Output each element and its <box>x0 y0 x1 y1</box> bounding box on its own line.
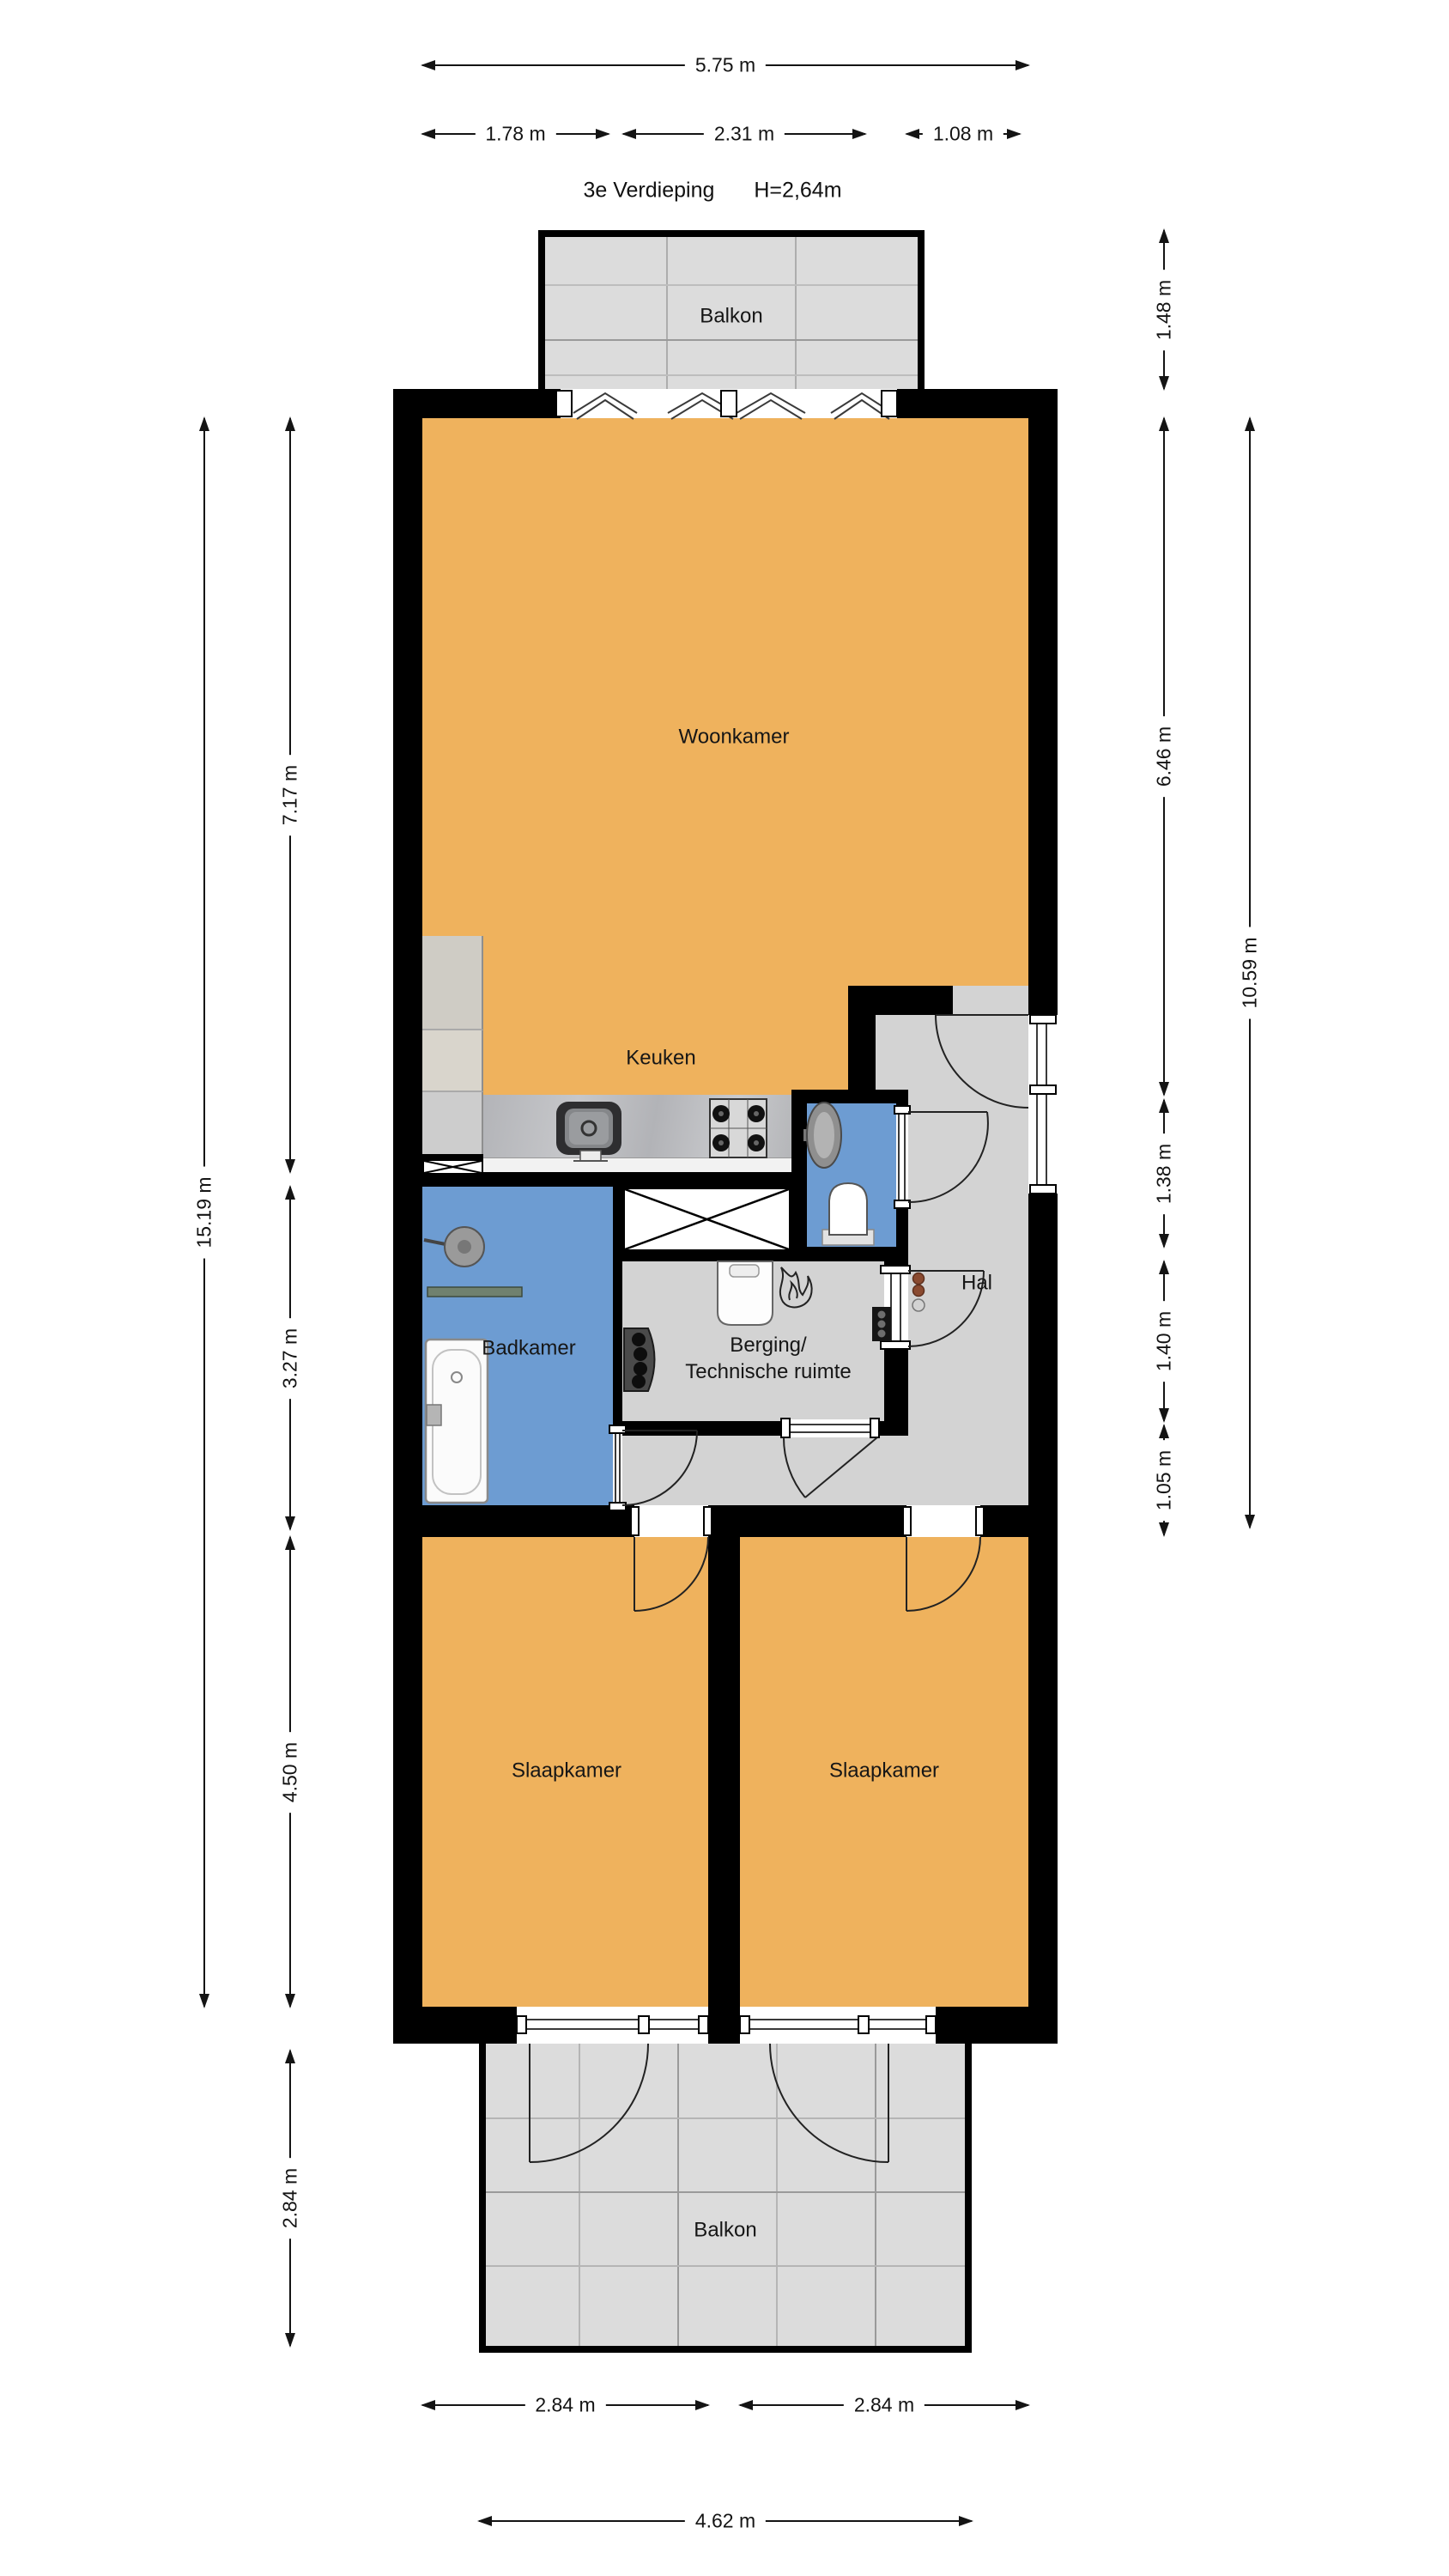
bedroom-window-icons <box>517 2016 936 2033</box>
slaapkamer-right-label: Slaapkamer <box>829 1758 939 1784</box>
dim-top-seg2: 2.31 m <box>623 133 865 135</box>
french-window-icon <box>556 391 897 419</box>
dim-bottom-slaapkamer-right: 2.84 m <box>740 2404 1028 2406</box>
heater-unit-icon <box>624 1328 655 1391</box>
dim-top-seg3: 1.08 m <box>906 133 1020 135</box>
berging-bottom-door-icon <box>781 1419 879 1498</box>
coat-hooks-icon <box>912 1273 925 1312</box>
entry-door-icon <box>936 1015 1056 1194</box>
boiler-flame-icon <box>780 1267 812 1307</box>
bathtub-icon <box>426 1340 488 1503</box>
bedroom-door-right-icon <box>903 1507 984 1611</box>
badkamer-door-icon <box>609 1425 697 1510</box>
dim-right-berging: 1.05 m <box>1163 1425 1165 1535</box>
floor-plan: Balkon Woonkamer Keuken Badkamer Berging… <box>0 0 1449 2576</box>
dim-right-balkon: 1.48 m <box>1163 230 1165 389</box>
balcony-door-left-icon <box>530 2044 648 2162</box>
balkon-bottom-grid <box>486 2044 965 2346</box>
meter-cabinet-icon <box>872 1307 891 1341</box>
shower-icon <box>424 1227 484 1267</box>
dim-left-badkamer: 3.27 m <box>289 1187 291 1529</box>
dim-left-slaapkamer: 4.50 m <box>289 1537 291 2007</box>
berging-label: Berging/ Technische ruimte <box>685 1332 851 1385</box>
dim-top-total: 5.75 m <box>422 64 1028 66</box>
ceiling-height: H=2,64m <box>754 179 841 204</box>
berging-label-line2: Technische ruimte <box>685 1360 851 1383</box>
slaapkamer-left-label: Slaapkamer <box>512 1758 621 1784</box>
badkamer-label: Badkamer <box>482 1335 575 1362</box>
woonkamer-label: Woonkamer <box>679 724 790 750</box>
keuken-label: Keuken <box>626 1045 695 1072</box>
dim-left-total: 15.19 m <box>203 418 205 2007</box>
dim-right-total: 10.59 m <box>1249 418 1251 1528</box>
plan-detail-layer <box>0 0 1449 2576</box>
wc-door-icon <box>894 1106 988 1208</box>
shaft-cross-large <box>625 1189 789 1249</box>
dim-right-woonkamer: 6.46 m <box>1163 418 1165 1095</box>
berging-label-line1: Berging/ <box>730 1334 806 1357</box>
dim-right-hal: 1.40 m <box>1163 1261 1165 1421</box>
shaft-cross-small <box>424 1161 482 1173</box>
balkon-top-label: Balkon <box>700 303 762 330</box>
dim-bottom-slaapkamer-left: 2.84 m <box>422 2404 708 2406</box>
dim-bottom-balkon: 4.62 m <box>479 2520 972 2522</box>
balkon-bottom-label: Balkon <box>694 2217 756 2244</box>
dim-top-seg1: 1.78 m <box>422 133 609 135</box>
floor-title: 3e Verdieping <box>583 179 714 204</box>
stove-hob-icon <box>710 1099 767 1157</box>
hal-label: Hal <box>961 1270 992 1297</box>
dim-left-woonkamer: 7.17 m <box>289 418 291 1172</box>
dim-right-wc: 1.38 m <box>1163 1100 1165 1247</box>
towel-bar-icon <box>427 1287 522 1297</box>
wc-toilet-icon <box>822 1183 874 1245</box>
balcony-door-right-icon <box>770 2044 888 2162</box>
washing-machine-icon <box>718 1261 773 1325</box>
kitchen-sink-icon <box>556 1102 621 1161</box>
plan-title: 3e Verdieping H=2,64m <box>583 179 841 204</box>
wc-basin-icon <box>803 1103 841 1168</box>
dim-left-balkon: 2.84 m <box>289 2050 291 2346</box>
bedroom-door-left-icon <box>631 1507 712 1611</box>
